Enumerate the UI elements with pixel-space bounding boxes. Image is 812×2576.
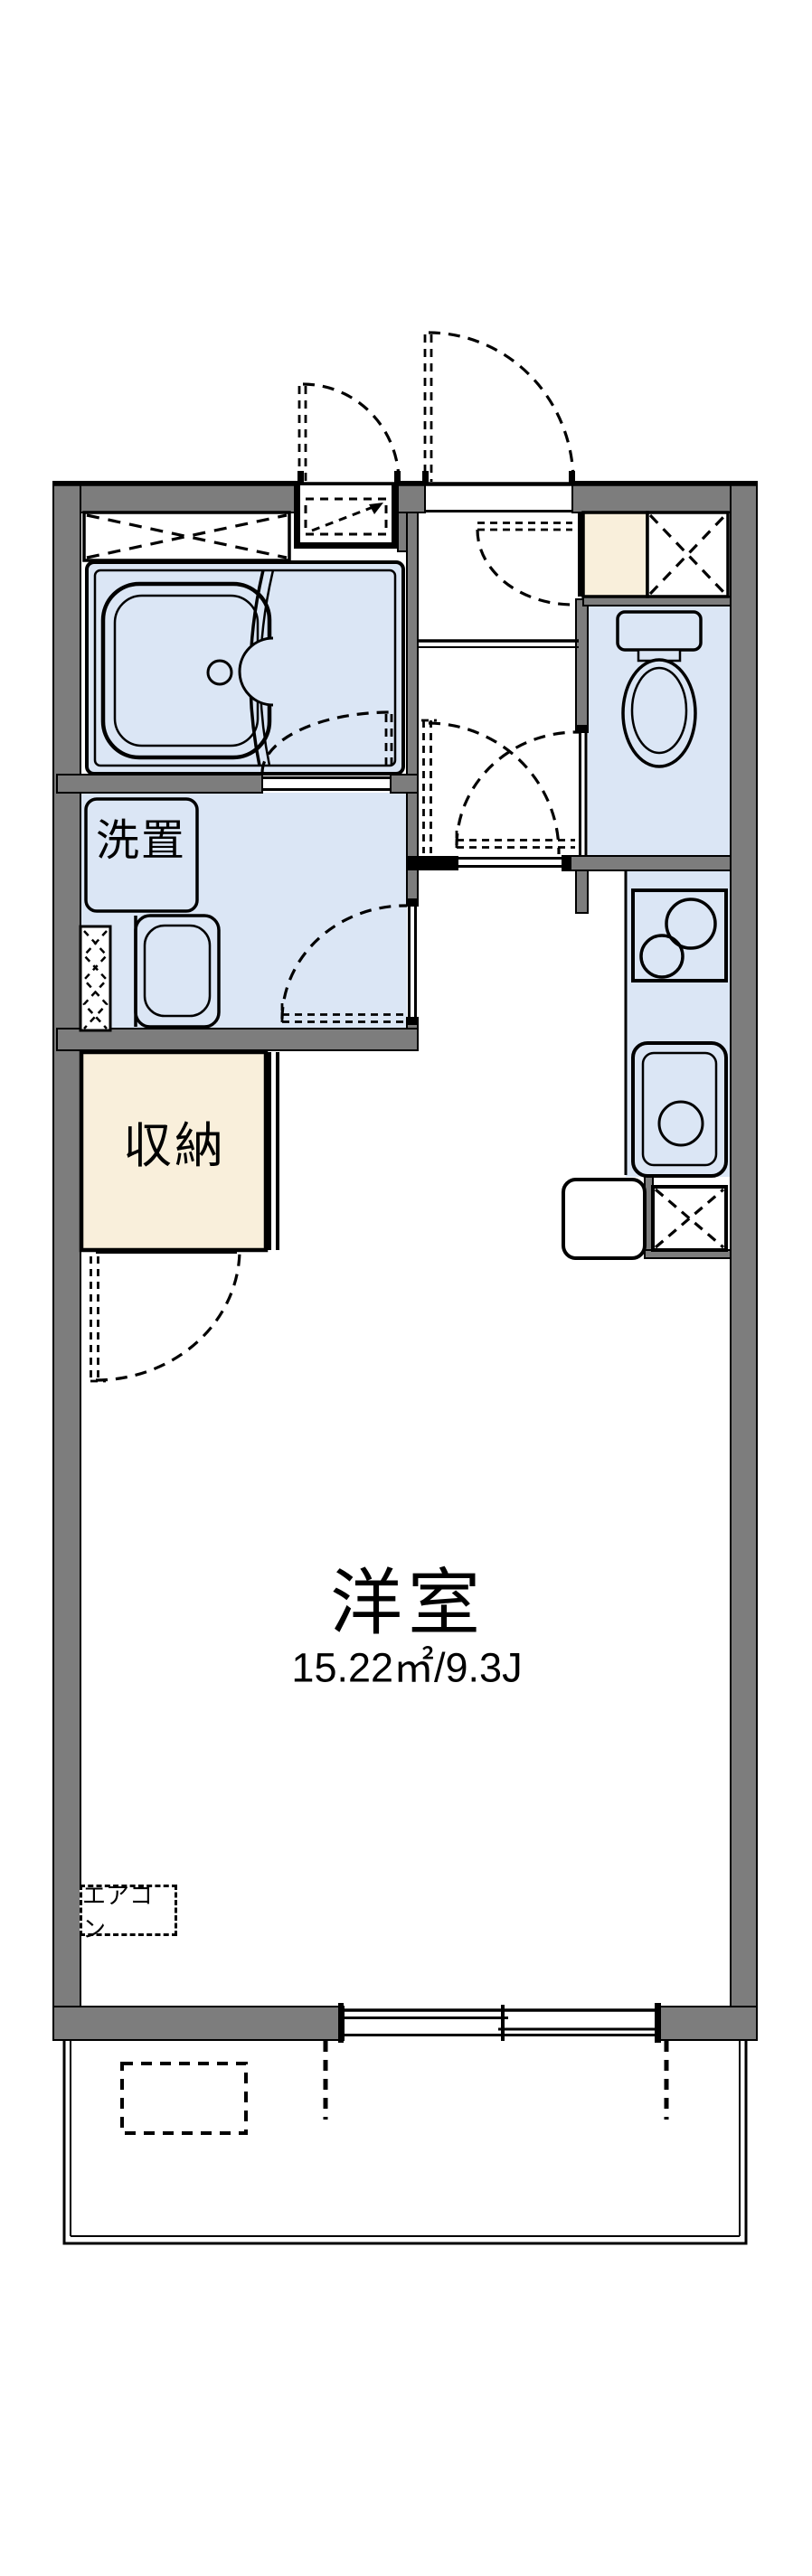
floorplan-canvas: 洗置 収納 洋室 15.22㎡/9.3J エアコン [0, 0, 812, 2576]
closet-side-line-2 [276, 1052, 279, 1250]
toilet-icon [618, 612, 701, 766]
aircon-label-box: エアコン [80, 1885, 177, 1936]
wall-kitchen-top [562, 856, 731, 870]
entrance-door-inner [477, 523, 572, 606]
balcony [64, 2040, 746, 2243]
top-niche [294, 485, 398, 549]
wall-top-mid [398, 482, 425, 512]
wall-right [731, 482, 757, 2040]
louver-strip-icon [80, 926, 110, 1030]
wall-hall-bottom-stub [407, 856, 458, 870]
closet-door [90, 1251, 240, 1381]
wall-left [53, 482, 80, 2040]
main-room-area-label: 15.22㎡/9.3J [291, 1648, 522, 1688]
refrigerator-space-icon [563, 1180, 645, 1258]
stove-icon [633, 890, 726, 981]
closet-side-line-1 [268, 1052, 271, 1250]
main-room-label: 洋室 [330, 1567, 486, 1640]
wall-washroom-bottom [57, 1029, 418, 1050]
air-conditioner-outdoor-unit-icon [122, 2064, 246, 2133]
bath-vent-box [84, 512, 289, 560]
washbasin-icon [136, 916, 219, 1027]
kitchen-sink-icon [633, 1043, 726, 1176]
wall-bottom-left [53, 2007, 344, 2040]
pipe-space-icon [653, 1187, 726, 1250]
washer-area-label: 洗置 [96, 820, 186, 863]
entrance-door-outer [425, 333, 573, 482]
kitchen [563, 870, 726, 1258]
shoe-cabinet-icon [583, 512, 647, 597]
sliding-window-icon [344, 2005, 656, 2041]
wall-toilet-left [576, 599, 588, 732]
storage-label: 収納 [123, 1122, 226, 1170]
floorplan-drawing [0, 0, 812, 2576]
wall-bath-bottom-right [391, 775, 418, 793]
aircon-label: エアコン [82, 1877, 175, 1944]
wall-bath-bottom [57, 775, 262, 793]
toilet-door [457, 732, 580, 848]
bath-unit [87, 562, 403, 774]
wall-bottom-right [656, 2007, 757, 2040]
meter-box-icon [647, 512, 728, 597]
wall-top-left [53, 482, 300, 512]
wall-hall-left-upper [407, 512, 418, 906]
wall-top-right [572, 482, 757, 512]
wall-stub-kitchen [576, 870, 588, 913]
niche-door [299, 384, 399, 482]
main-room-door [421, 720, 559, 854]
